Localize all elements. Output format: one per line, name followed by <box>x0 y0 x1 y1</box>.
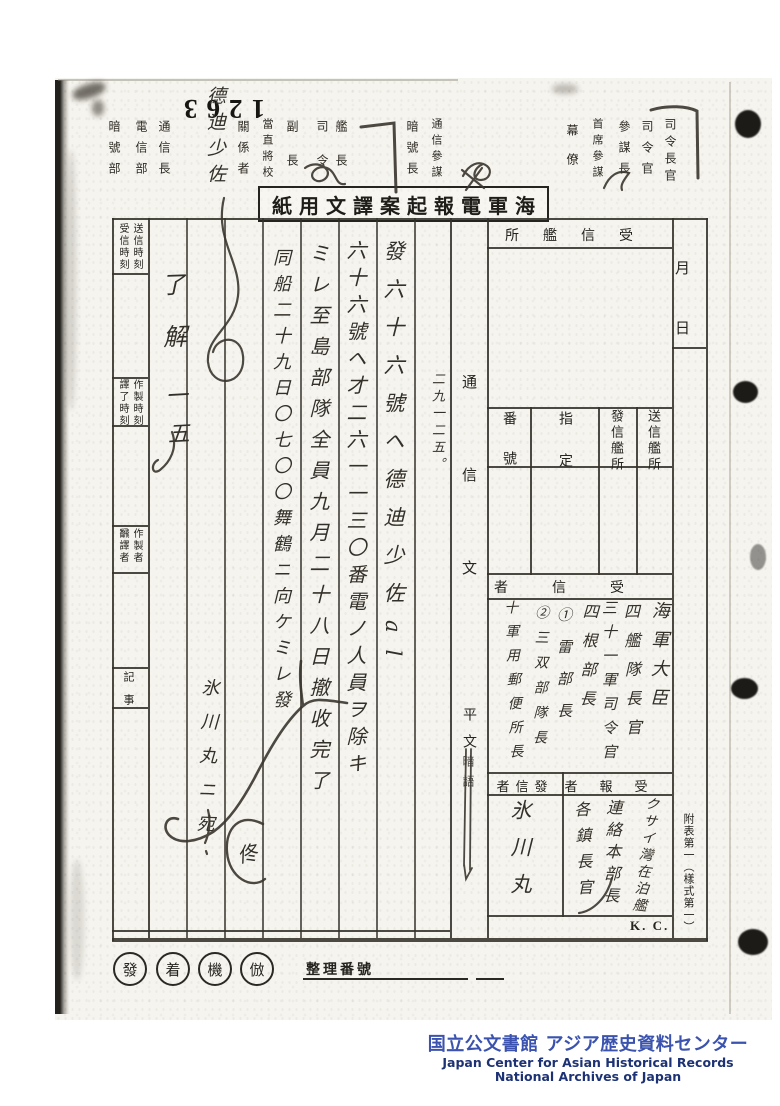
header-report-receiver: 者報受 <box>564 776 670 795</box>
report-receiver-item: 各鎮長官 <box>572 801 592 905</box>
header-translator: 飜譯者 <box>117 528 127 564</box>
routing-label-tsushincho: 通信長 <box>158 120 170 183</box>
stamp-chaku: 着 <box>156 952 190 986</box>
header-send-ship: 送信艦所 <box>647 409 660 473</box>
label-comm-text: 通信文 <box>460 374 475 653</box>
header-make-time: 作製時刻 <box>131 379 141 427</box>
label-cipher-text: 暗語 <box>462 755 474 795</box>
label-month: 月 <box>675 257 690 278</box>
label-day: 日 <box>675 317 690 338</box>
header-maker: 作製者 <box>131 528 141 564</box>
sender-name: 氷川丸 <box>509 799 530 910</box>
header-notes: 記事 <box>122 671 133 717</box>
message-time-group: 二九一二五。 <box>430 372 443 474</box>
routing-label-kancho: 艦長 <box>335 120 347 188</box>
header-recv-time: 受信時刻 <box>117 223 127 271</box>
header-send-time: 送信時刻 <box>131 223 141 271</box>
message-line: 六十六號ヘ才二六一一三〇番電ノ人員ヲ除キ <box>345 240 365 780</box>
binding-hole <box>735 110 761 138</box>
stamp-ho: 倣 <box>240 952 274 986</box>
serial-number-label: 整理番號 <box>306 959 374 979</box>
routing-label-angocho: 暗號長 <box>406 120 418 183</box>
hikawa-note: 氷川丸ニ宛 <box>194 678 218 849</box>
serial-underline <box>303 978 468 980</box>
header-number: 番號 <box>501 411 515 491</box>
routing-label-tsushinsambo: 通信參謀 <box>430 118 441 182</box>
routing-label-fukucho: 副長 <box>286 120 298 188</box>
receiver-item: ②三双部隊長 <box>532 605 549 755</box>
message-reference: 發六十六號ヘ德迪少佐al <box>382 240 403 673</box>
archive-name-en2: National Archives of Japan <box>398 1070 778 1084</box>
binding-hole <box>733 381 758 403</box>
form-reference: 附表第一（樣式第一） <box>682 813 693 933</box>
form-title: 紙用文譯案起報電軍海 <box>265 190 542 219</box>
message-line: 同船二十九日〇七〇〇舞鶴ニ向ケミレ發 <box>271 248 289 716</box>
serial-underline <box>476 978 504 980</box>
routing-label-shireikan: 司令官 <box>641 120 653 183</box>
receiver-item: 海軍大臣 <box>648 601 668 717</box>
routing-label-sambocho: 參謀長 <box>618 120 630 183</box>
binding-hole <box>738 929 768 955</box>
archive-name-en: Japan Center for Asian Historical Record… <box>398 1056 778 1070</box>
handwritten-officer-name: 德迪少佐 <box>205 86 224 190</box>
kc-mark: K. C. <box>630 918 669 934</box>
stamp-hatsu: 發 <box>113 952 147 986</box>
binding-hole <box>750 544 766 570</box>
routing-label-tochokushoko: 當直將校 <box>261 118 272 182</box>
routing-label-bakuryo: 幕僚 <box>566 124 578 182</box>
header-receiver: 者信受 <box>492 577 670 597</box>
routing-label-shireichokan: 司令長官 <box>664 118 676 186</box>
stamp-ki: 機 <box>198 952 232 986</box>
archive-name-jp: 国立公文書館 アジア歴史資料センター <box>398 1030 778 1056</box>
receiver-item: 四根部長 <box>577 603 597 719</box>
header-assign: 指定 <box>557 411 571 495</box>
routing-label-shusekisambo: 首席參謀 <box>591 118 602 182</box>
archive-footer: 国立公文書館 アジア歴史資料センター Japan Center for Asia… <box>398 1030 778 1085</box>
form-title-box: 紙用文譯案起報電軍海 <box>258 186 549 222</box>
binding-hole <box>731 678 758 699</box>
header-origin-ship: 發信艦所 <box>610 409 623 473</box>
ack-note: 了解 <box>158 272 186 377</box>
scanned-document: 1263 德迪少佐 暗號部 電信部 通信長 關係者 當直將校 副長 司令 艦長 … <box>0 0 780 1106</box>
message-line: ミレ至島部隊全員九月二十八日撤收完了 <box>308 243 328 801</box>
header-trans-time: 譯了時刻 <box>117 379 127 427</box>
report-receiver-item: 連絡本部長 <box>601 799 621 909</box>
receiver-item: ①雷部長 <box>556 607 571 735</box>
routing-label-denshinbu: 電信部 <box>135 120 147 183</box>
routing-label-kankeisha: 關係者 <box>237 120 249 183</box>
routing-label-angobu: 暗號部 <box>108 120 120 183</box>
label-plain-text: 平文 <box>461 707 475 761</box>
routing-label-shirei: 司令 <box>316 120 328 188</box>
header-sender: 者信發 <box>489 776 561 795</box>
receiver-item: 四艦隊長官 <box>622 603 641 748</box>
ack-number: 一五 <box>162 383 188 460</box>
receiver-item: 三十一軍司令官 <box>601 600 616 768</box>
header-recv-station: 所艦信受 <box>492 225 670 245</box>
